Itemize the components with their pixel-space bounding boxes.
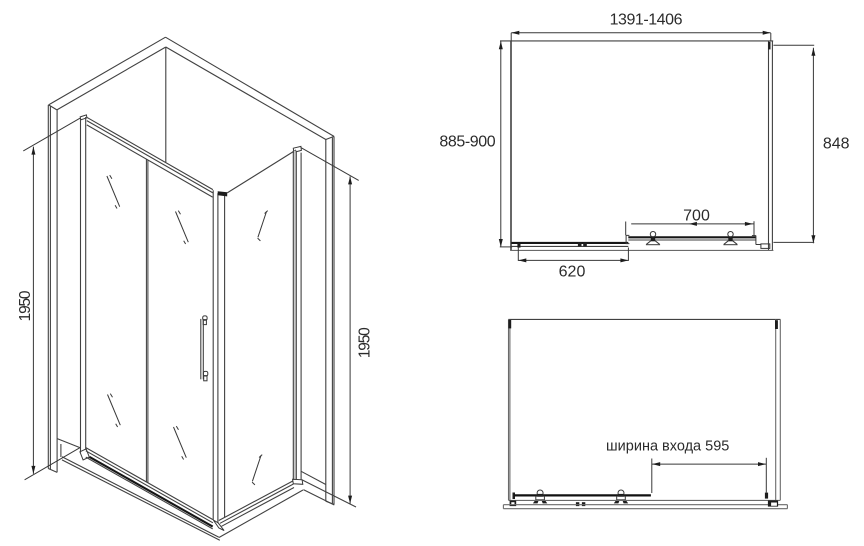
svg-text:700: 700 <box>683 207 710 224</box>
svg-text:885-900: 885-900 <box>439 134 495 151</box>
svg-text:1391-1406: 1391-1406 <box>610 12 683 29</box>
svg-text:620: 620 <box>559 264 586 281</box>
svg-text:ширина входа 595: ширина входа 595 <box>606 439 729 455</box>
svg-text:1950: 1950 <box>357 327 374 358</box>
svg-text:848: 848 <box>823 135 850 152</box>
svg-text:1950: 1950 <box>17 290 34 321</box>
